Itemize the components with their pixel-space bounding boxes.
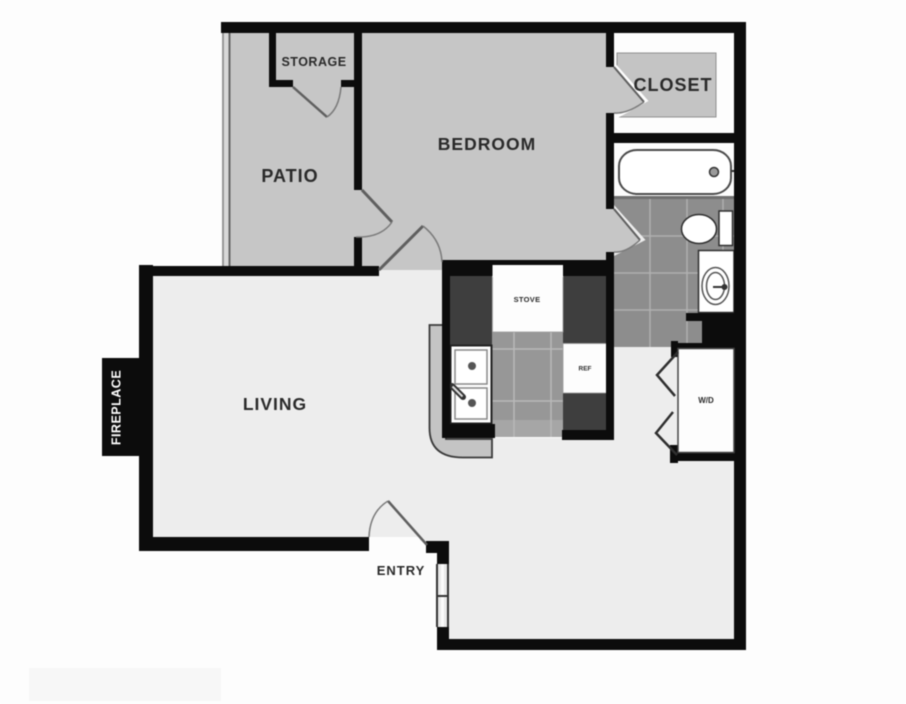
svg-text:STOVE: STOVE — [514, 295, 541, 304]
svg-text:FIREPLACE: FIREPLACE — [110, 370, 124, 445]
svg-text:STORAGE: STORAGE — [281, 55, 346, 69]
svg-text:LIVING: LIVING — [243, 394, 307, 414]
svg-text:PATIO: PATIO — [261, 166, 318, 186]
svg-text:REF: REF — [579, 366, 592, 373]
svg-text:CLOSET: CLOSET — [633, 75, 712, 95]
svg-text:W/D: W/D — [698, 396, 714, 405]
svg-text:ENTRY: ENTRY — [377, 563, 426, 578]
svg-text:BEDROOM: BEDROOM — [438, 134, 536, 154]
